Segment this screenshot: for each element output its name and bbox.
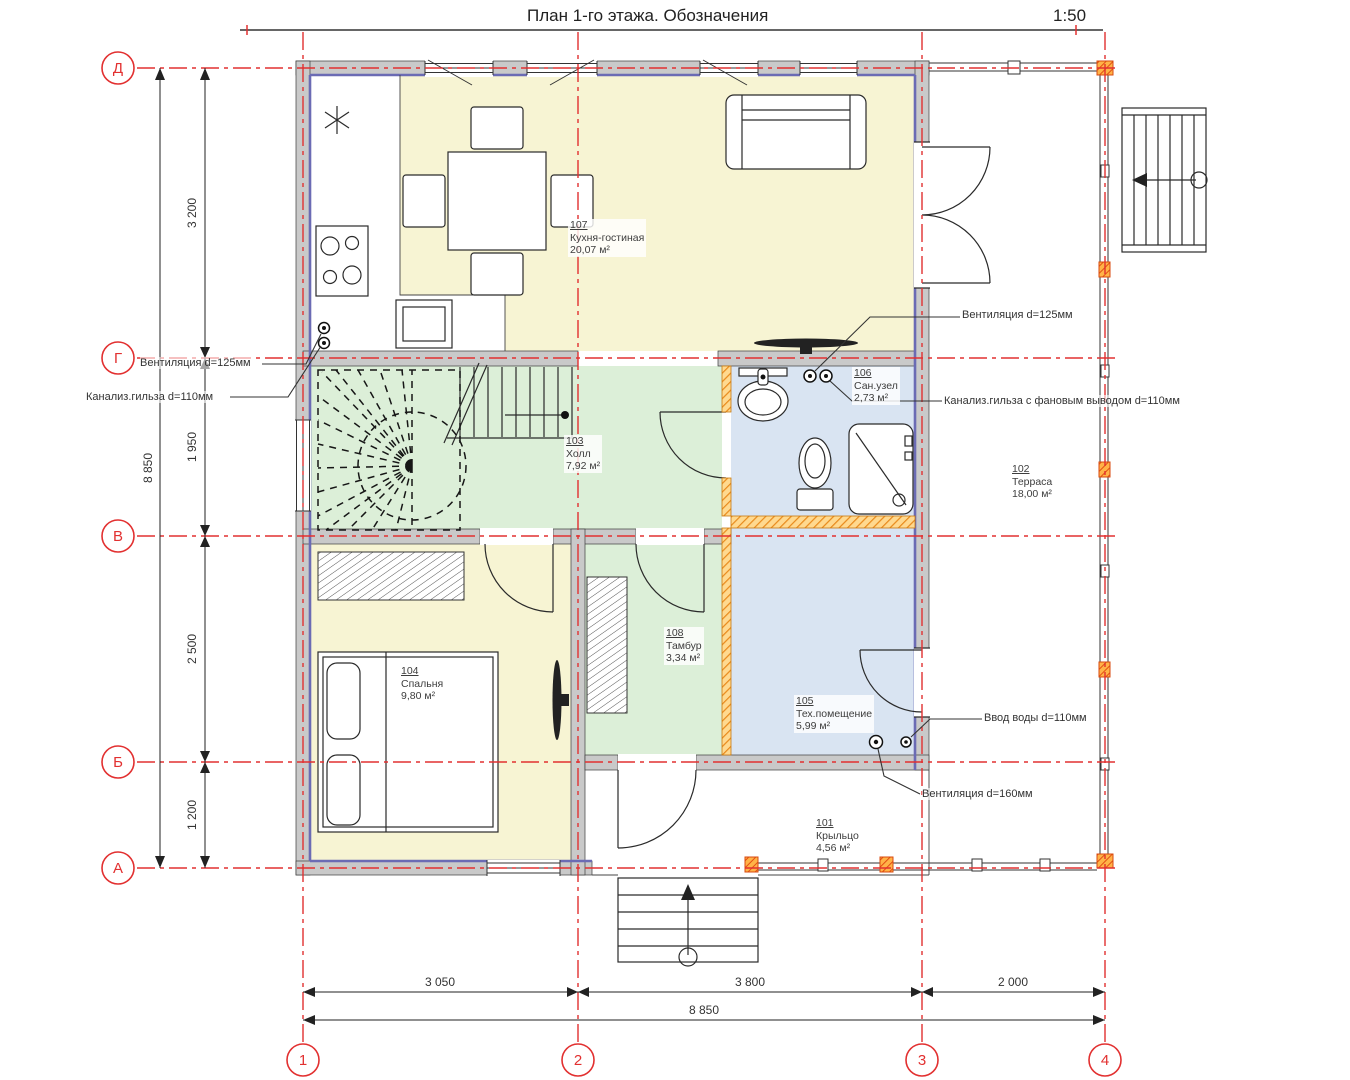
wardrobe-tambour [587,577,627,713]
floor-plan-drawing: 3 200 1 950 2 500 1 200 8 850 3 050 3 80… [0,0,1350,1080]
axis-bubble-4: 4 [1101,1052,1109,1069]
dim-bottom-total: 8 850 [689,1003,719,1017]
dim-bottom-2: 3 800 [735,975,765,989]
dim-bottom-1: 3 050 [425,975,455,989]
dim-left-2: 1 950 [185,432,199,462]
room-label-106: 106 Сан.узел 2,73 м² [852,367,900,405]
title-rule [240,25,1103,35]
axis-bubble-a: А [113,860,123,877]
toilet [797,438,833,510]
sofa [726,95,866,169]
drawing-scale: 1:50 [1053,6,1086,26]
terrace-stair [1122,108,1207,252]
room-label-105: 105 Тех.помещение 5,99 м² [794,695,874,733]
dim-left-4: 1 200 [185,800,199,830]
dim-left-1: 3 200 [185,198,199,228]
room-label-107: 107 Кухня-гостиная 20,07 м² [568,219,646,257]
door-porch-entrance [618,770,696,848]
shower-cabin [849,424,913,514]
axis-bubble-3: 3 [918,1052,926,1069]
washbasin [738,368,788,421]
room-label-104: 104 Спальня 9,80 м² [399,665,445,703]
room-label-101: 101 Крыльцо 4,56 м² [814,817,861,855]
room-label-108: 108 Тамбур 3,34 м² [664,627,704,665]
chair-left [403,175,445,227]
chair-top [471,107,523,149]
axis-bubble-2: 2 [574,1052,582,1069]
room-label-102: 102 Терраса 18,00 м² [1010,463,1054,501]
room-label-103: 103 Холл 7,92 м² [564,435,602,473]
dim-left-3: 2 500 [185,634,199,664]
wardrobe-bedroom [318,552,464,600]
drawing-title: План 1-го этажа. Обозначения [527,6,768,26]
stair-handrail-post [561,411,569,419]
pillow-1 [327,663,360,739]
axis-bubble-d: Д [113,60,123,77]
annotation-vent125-left: Вентиляция d=125мм [140,357,251,369]
annotation-sewer110-left: Канализ.гильза d=110мм [86,391,213,403]
axis-bubble-v: В [113,528,123,545]
stove [316,226,368,296]
oven-appliance [396,300,452,348]
floor-plan-sheet: 3 200 1 950 2 500 1 200 8 850 3 050 3 80… [0,0,1350,1080]
axis-bubble-1: 1 [299,1052,307,1069]
annotation-vent125-right: Вентиляция d=125мм [962,309,1073,321]
partition-bathroom-lower [722,478,731,516]
pillow-2 [327,755,360,825]
annotation-sewer110-right: Канализ.гильза с фановым выводом d=110мм [944,395,1180,407]
partition-tambour-tech [722,528,731,755]
dim-bottom-3: 2 000 [998,975,1028,989]
partition-bathroom-upper [722,366,731,412]
dining-table [448,152,546,250]
axis-bubble-g: Г [114,350,122,367]
annotation-water110: Ввод воды d=110мм [984,712,1087,724]
chair-bottom [471,253,523,295]
entrance-steps [618,878,758,966]
axis-bubble-b: Б [113,754,123,771]
dim-left-total: 8 850 [141,453,155,483]
annotation-vent160: Вентиляция d=160мм [922,788,1033,800]
porch-slab-edge [592,770,929,875]
partition-bathroom-tech [731,516,915,528]
